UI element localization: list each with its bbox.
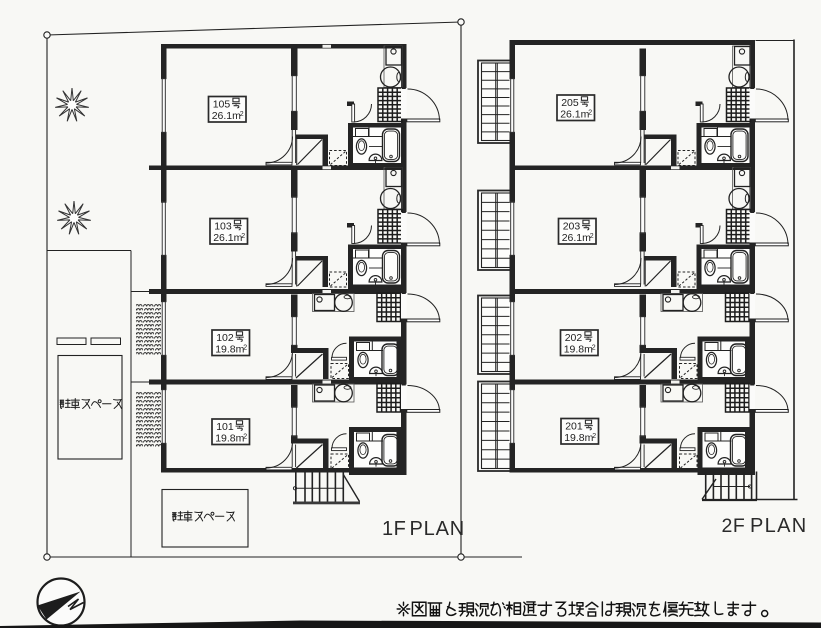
svg-text:PLAN: PLAN — [750, 515, 807, 537]
svg-text:19.8m: 19.8m — [564, 432, 593, 444]
svg-text:26.1m: 26.1m — [213, 232, 242, 244]
svg-text:2F: 2F — [722, 515, 746, 537]
svg-text:201: 201 — [565, 421, 583, 433]
svg-text:19.8m: 19.8m — [215, 344, 244, 356]
svg-text:26.1m: 26.1m — [560, 109, 589, 121]
svg-text:26.1m: 26.1m — [562, 232, 591, 244]
svg-text:26.1m: 26.1m — [212, 110, 241, 122]
svg-text:2: 2 — [588, 110, 592, 117]
svg-text:2: 2 — [243, 434, 247, 441]
svg-text:19.8m: 19.8m — [215, 433, 244, 445]
svg-text:1F: 1F — [382, 518, 406, 540]
svg-text:102: 102 — [216, 332, 234, 344]
svg-text:2: 2 — [590, 233, 594, 240]
svg-text:105: 105 — [213, 99, 231, 111]
svg-text:205: 205 — [561, 97, 579, 109]
svg-text:202: 202 — [565, 332, 583, 344]
svg-text:2: 2 — [592, 433, 596, 440]
svg-text:2: 2 — [241, 233, 245, 240]
svg-text:PLAN: PLAN — [410, 518, 465, 540]
svg-text:2: 2 — [240, 111, 244, 118]
svg-text:2: 2 — [243, 345, 247, 352]
svg-text:2: 2 — [592, 345, 596, 352]
svg-text:103: 103 — [214, 221, 232, 233]
svg-text:19.8m: 19.8m — [564, 344, 593, 356]
svg-text:101: 101 — [216, 421, 234, 433]
svg-text:203: 203 — [563, 221, 581, 233]
